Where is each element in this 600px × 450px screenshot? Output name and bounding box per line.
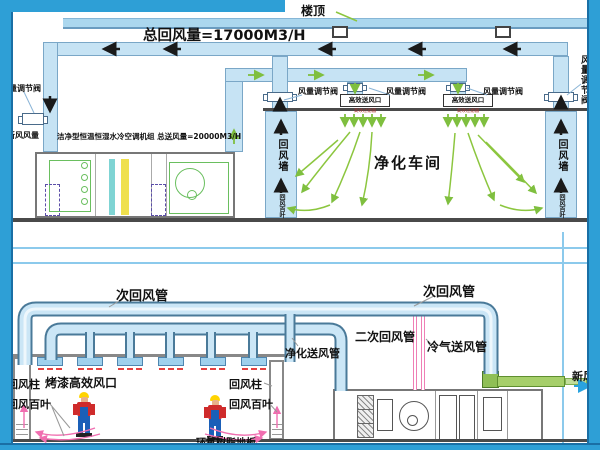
cold-air-pipe-2 bbox=[421, 313, 425, 390]
lower-ceiling-line-2 bbox=[13, 262, 587, 264]
return-wall-label-right: 回风墙 bbox=[554, 139, 569, 179]
valve-label-1: 风量调节阀 bbox=[298, 86, 338, 97]
diffuser-spec-marks bbox=[201, 368, 225, 370]
hepa-outlet-sublabel-1: 高效过滤器 bbox=[340, 108, 390, 114]
diffuser-spec-marks bbox=[78, 368, 102, 370]
secondary-return-label-left: 次回风管 bbox=[116, 285, 168, 304]
arm bbox=[91, 404, 95, 415]
return-louver-label-right-top: 回风百叶 bbox=[557, 194, 566, 220]
ahu-divider bbox=[166, 154, 167, 216]
diffuser-spec-marks bbox=[118, 368, 142, 370]
ahu-divider bbox=[435, 391, 436, 439]
lower-floor-line bbox=[13, 439, 587, 442]
wall-louver-slat bbox=[272, 434, 282, 435]
ahu-filter-block bbox=[357, 423, 374, 438]
frame-top bbox=[0, 0, 285, 12]
valve-branch-2 bbox=[450, 83, 466, 92]
ahu-divider bbox=[477, 391, 478, 439]
return-louver-label-left-bottom: 回风百叶 bbox=[7, 396, 51, 412]
wall-louver-slat bbox=[16, 429, 28, 430]
ahu-coil-panel bbox=[439, 395, 457, 441]
secondary-return-label-right: 次回风管 bbox=[423, 281, 475, 300]
lower-right-wall-line bbox=[562, 232, 564, 443]
cleanroom-ceiling bbox=[263, 108, 587, 111]
ahu-filter-frame bbox=[151, 184, 166, 216]
roof-vent-left bbox=[332, 26, 348, 38]
ahu-heating-bar bbox=[121, 159, 129, 215]
cold-supply-label: 冷气送风管 bbox=[427, 338, 487, 355]
ceiling-diffuser bbox=[158, 357, 184, 366]
ahu-unit-bottom bbox=[333, 389, 543, 441]
ahu-access-door bbox=[483, 397, 502, 431]
purified-supply-label: 净化送风管 bbox=[285, 345, 340, 361]
diffuser-spec-marks bbox=[38, 368, 62, 370]
cold-air-pipe-1 bbox=[413, 313, 417, 390]
ahu-coil-circle bbox=[81, 186, 88, 193]
return-wall-label-left: 回风墙 bbox=[274, 139, 289, 179]
right-return-riser bbox=[553, 56, 569, 111]
hepa-outlet-box-1: 高效送风口 bbox=[340, 94, 390, 107]
hvac-diagram: 高效送风口 高效过滤器 高效送风口 高效过滤器 bbox=[0, 0, 600, 450]
ahu-access-door bbox=[377, 399, 393, 431]
ahu-filter-block bbox=[357, 409, 374, 424]
frame-left bbox=[0, 0, 13, 450]
secondary-return-2-label: 二次回风管 bbox=[355, 328, 415, 345]
ahu-coil-circle bbox=[81, 162, 88, 169]
return-louver-label-right-bottom: 回风百叶 bbox=[229, 396, 273, 412]
hepa-outlet-label: 高效送风口 bbox=[349, 96, 382, 104]
ahu-unit-top bbox=[35, 152, 235, 218]
ceiling-diffuser bbox=[37, 357, 63, 366]
roof-vent-right bbox=[495, 26, 511, 38]
supply-air-duct bbox=[225, 68, 467, 82]
roof-label: 楼顶 bbox=[301, 2, 325, 19]
diffuser-spec-marks bbox=[159, 368, 183, 370]
overall-bib bbox=[211, 410, 219, 419]
arm bbox=[73, 404, 77, 415]
arm bbox=[222, 407, 226, 418]
ahu-coil-circle bbox=[81, 198, 88, 205]
return-louver-label-left-top: 回风百叶 bbox=[277, 194, 286, 220]
fresh-air-duct bbox=[497, 376, 565, 387]
upper-floor-line bbox=[13, 218, 587, 222]
ahu-fan-hub bbox=[407, 415, 418, 426]
overall-bib bbox=[80, 407, 88, 416]
worker-figure-left bbox=[73, 392, 95, 440]
ahu-filter-frame bbox=[45, 184, 60, 216]
boots bbox=[76, 433, 92, 437]
frame-bottom bbox=[0, 443, 600, 450]
legs bbox=[78, 416, 90, 433]
ahu-cooling-bar bbox=[109, 159, 115, 215]
hepa-outlet-sublabel-2: 高效过滤器 bbox=[443, 108, 493, 114]
valve-label-3: 风量调节阀 bbox=[483, 86, 523, 97]
hepa-outlet-label: 高效送风口 bbox=[452, 96, 485, 104]
paint-hepa-outlet-label: 烤漆高效风口 bbox=[45, 374, 117, 391]
ahu-filter-block bbox=[357, 395, 374, 410]
cleanroom-title: 净化车间 bbox=[374, 152, 442, 173]
wall-louver-slat bbox=[16, 424, 28, 425]
frame-right bbox=[587, 0, 600, 450]
lower-ceiling-line-1 bbox=[13, 247, 587, 249]
fresh-air-damper-valve bbox=[22, 113, 44, 125]
wall-louver-slat bbox=[16, 434, 28, 435]
diffuser-spec-marks bbox=[242, 368, 266, 370]
ahu-coil-panel bbox=[459, 395, 475, 441]
return-air-left-down-duct bbox=[43, 42, 58, 152]
left-return-riser bbox=[272, 56, 288, 112]
valve-label-2: 风量调节阀 bbox=[386, 86, 426, 97]
valve-right-riser bbox=[548, 92, 574, 102]
ceiling-diffuser bbox=[241, 357, 267, 366]
valve-left-riser bbox=[267, 92, 293, 102]
ahu-title: 洁净型恒温恒湿水冷空调机组 总送风量=20000M3/H bbox=[57, 131, 241, 142]
valve-branch-1 bbox=[347, 83, 363, 92]
return-column-label-right: 回风柱 bbox=[229, 376, 262, 392]
ceiling-diffuser bbox=[77, 357, 103, 366]
wall-louver-slat bbox=[272, 429, 282, 430]
ahu-divider bbox=[95, 154, 96, 216]
wall-louver-slat bbox=[272, 424, 282, 425]
ceiling-diffuser bbox=[200, 357, 226, 366]
ceiling-diffuser bbox=[117, 357, 143, 366]
ahu-fan-hub bbox=[187, 190, 197, 200]
ahu-coil-circle bbox=[81, 174, 88, 181]
total-return-title: 总回风量=17000M3/H bbox=[143, 24, 306, 45]
ahu-divider bbox=[507, 391, 508, 439]
arm bbox=[204, 407, 208, 418]
